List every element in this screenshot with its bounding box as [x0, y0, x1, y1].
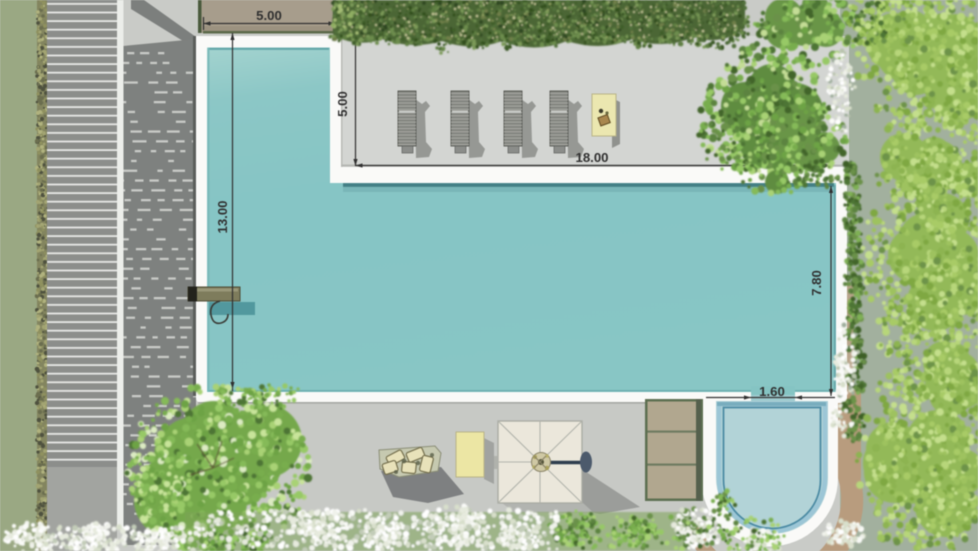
svg-text:18.00: 18.00 — [575, 150, 608, 165]
svg-text:13.00: 13.00 — [215, 200, 230, 233]
svg-text:5.00: 5.00 — [256, 8, 282, 23]
svg-text:7.80: 7.80 — [809, 270, 824, 296]
svg-text:1.60: 1.60 — [759, 384, 785, 399]
svg-text:5.00: 5.00 — [335, 91, 350, 117]
